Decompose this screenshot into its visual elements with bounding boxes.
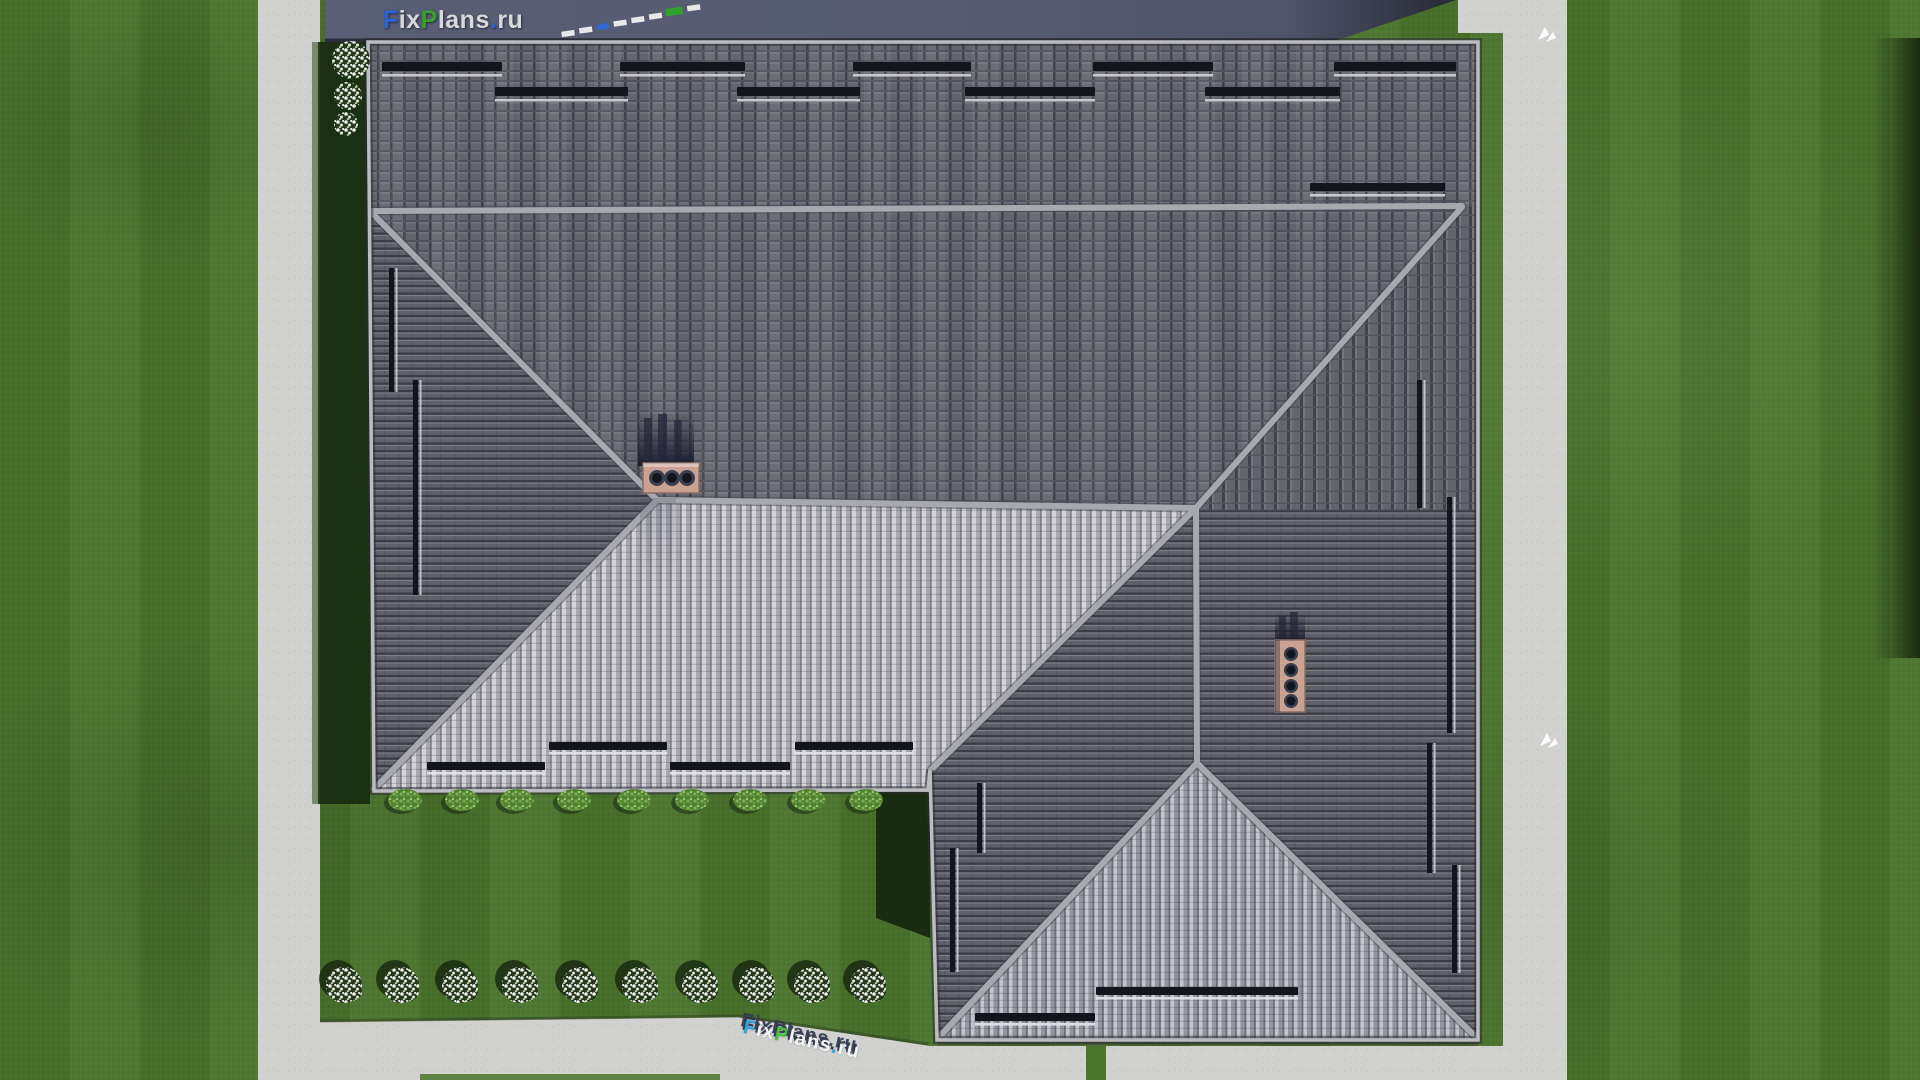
- chimney-left-pots: [649, 470, 695, 486]
- tree-shadow-right-edge: [1874, 38, 1920, 658]
- hedge-tufts-row: [384, 789, 883, 814]
- aerial-roof-render: FixPlans.ru FixPlans.ru: [0, 0, 1920, 1080]
- chimney-right: [1275, 612, 1305, 712]
- watermark-logo-top: FixPlans.ru: [383, 6, 523, 35]
- flower-bush-row-bottom: [319, 960, 886, 1003]
- render-graphics: [0, 0, 1920, 1080]
- driveway-grass-notch: [1086, 1046, 1106, 1080]
